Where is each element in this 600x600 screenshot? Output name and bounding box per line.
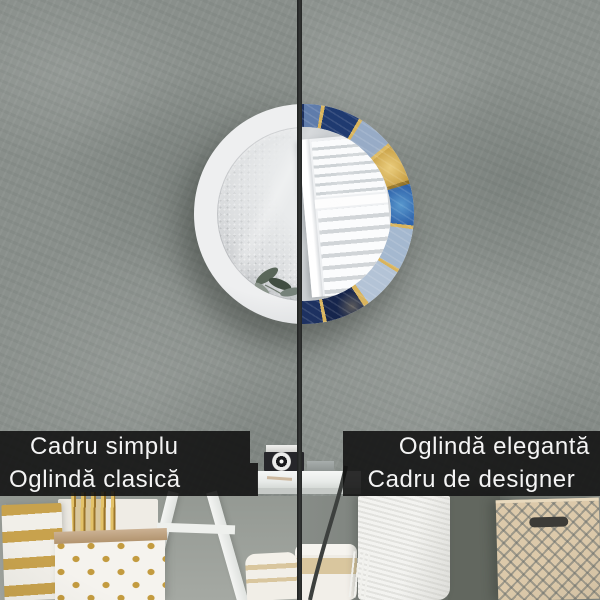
basket-handle-cutout [529,516,568,527]
camera-lens-icon [272,452,291,471]
split-divider-line [297,0,302,600]
kraft-fold-edge [54,528,168,544]
striped-pillow-left [245,552,299,600]
gold-polka-dot-paper-bag [55,537,165,600]
patterned-storage-basket [496,498,600,600]
shadowed-wall-gap [448,496,500,600]
label-text-simple-frame: Cadru simplu [30,433,179,461]
plant-leaves-reflection [217,127,391,301]
label-bar-right-top: Oglindă elegantă [343,431,600,463]
label-text-designer-frame: Cadru de designer [368,466,576,494]
label-bar-right-bottom: Cadru de designer [343,463,600,496]
label-bar-left-bottom: Oglindă clasică [0,463,258,496]
label-text-classic-mirror: Oglindă clasică [9,466,181,494]
label-bar-left-top: Cadru simplu [0,431,250,463]
product-comparison-image: Cadru simplu Oglindă clasică Oglindă ele… [0,0,600,600]
throw-texture [358,496,450,600]
mirror-glass [217,127,391,301]
knit-throw [358,496,450,600]
label-text-elegant-mirror: Oglindă elegantă [399,433,590,461]
